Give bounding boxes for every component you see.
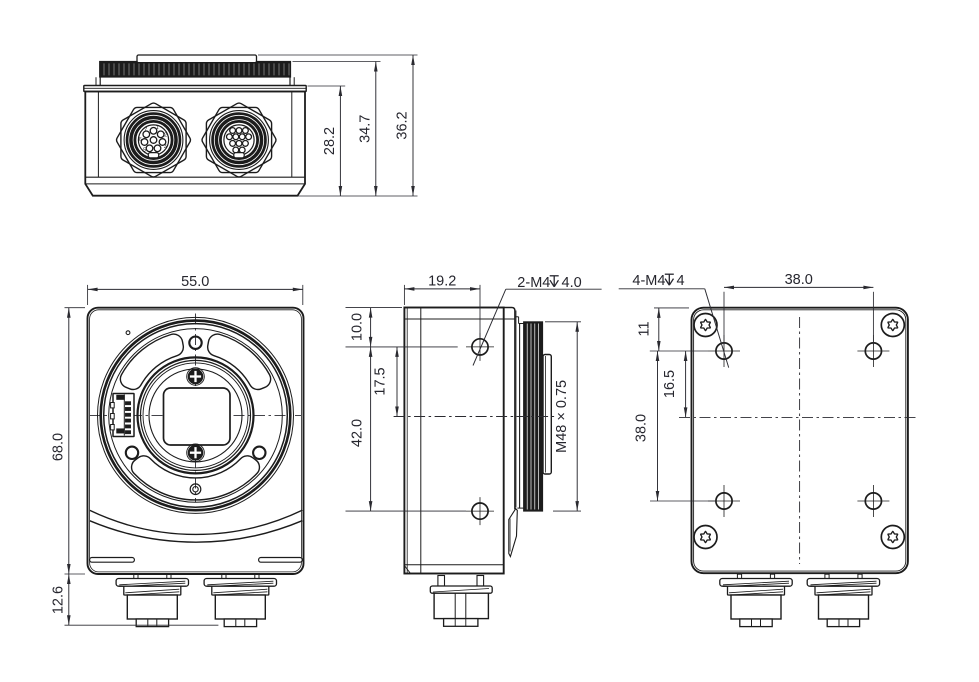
svg-text:34.7: 34.7 xyxy=(357,115,373,143)
svg-text:16.5: 16.5 xyxy=(662,370,678,398)
svg-text:12.6: 12.6 xyxy=(50,586,66,614)
svg-text:1: 1 xyxy=(156,125,159,131)
svg-text:10.0: 10.0 xyxy=(350,313,366,341)
svg-text:36.2: 36.2 xyxy=(395,111,411,139)
svg-text:4-M4: 4-M4 xyxy=(632,273,665,289)
svg-text:4.0: 4.0 xyxy=(562,275,582,291)
svg-text:55.0: 55.0 xyxy=(181,274,209,290)
svg-text:28.2: 28.2 xyxy=(322,127,338,155)
svg-text:38.0: 38.0 xyxy=(785,272,813,288)
svg-text:38.0: 38.0 xyxy=(634,414,650,442)
svg-text:7: 7 xyxy=(144,127,147,133)
svg-text:11: 11 xyxy=(637,321,653,336)
svg-text:17.5: 17.5 xyxy=(373,367,389,395)
svg-text:68.0: 68.0 xyxy=(50,433,66,461)
svg-text:2: 2 xyxy=(164,133,167,139)
svg-text:42.0: 42.0 xyxy=(350,419,366,447)
svg-text:2-M4: 2-M4 xyxy=(517,275,550,291)
svg-text:5: 5 xyxy=(143,148,146,154)
svg-text:19.2: 19.2 xyxy=(428,273,456,289)
svg-text:3: 3 xyxy=(164,144,167,150)
svg-text:4: 4 xyxy=(677,273,685,289)
svg-text:M48 × 0.75: M48 × 0.75 xyxy=(554,380,570,453)
svg-text:6: 6 xyxy=(139,137,142,143)
